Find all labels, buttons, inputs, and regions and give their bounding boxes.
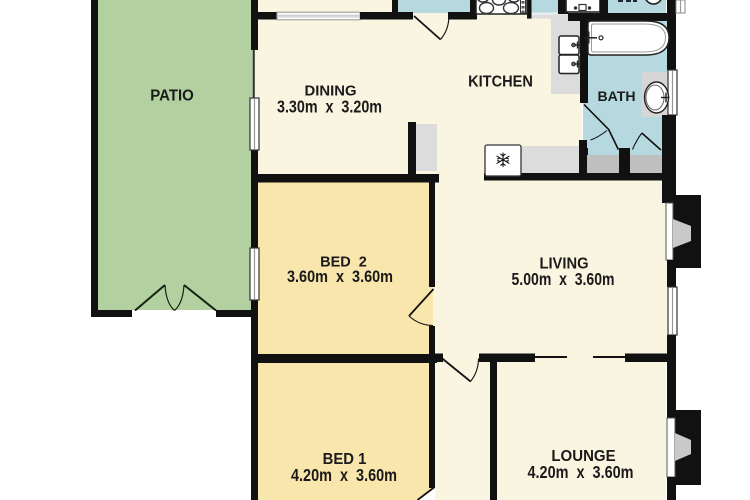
svg-text:3.60m x 3.60m: 3.60m x 3.60m: [287, 268, 393, 286]
svg-text:KITCHEN: KITCHEN: [468, 74, 533, 91]
svg-text:BATH: BATH: [598, 89, 636, 104]
svg-text:4.20m x 3.60m: 4.20m x 3.60m: [291, 465, 397, 485]
svg-text:PATIO: PATIO: [150, 88, 194, 105]
svg-text:3.30m x 3.20m: 3.30m x 3.20m: [277, 97, 382, 117]
svg-text:4.20m x 3.60m: 4.20m x 3.60m: [528, 462, 634, 482]
svg-text:5.00m x 3.60m: 5.00m x 3.60m: [512, 269, 615, 289]
